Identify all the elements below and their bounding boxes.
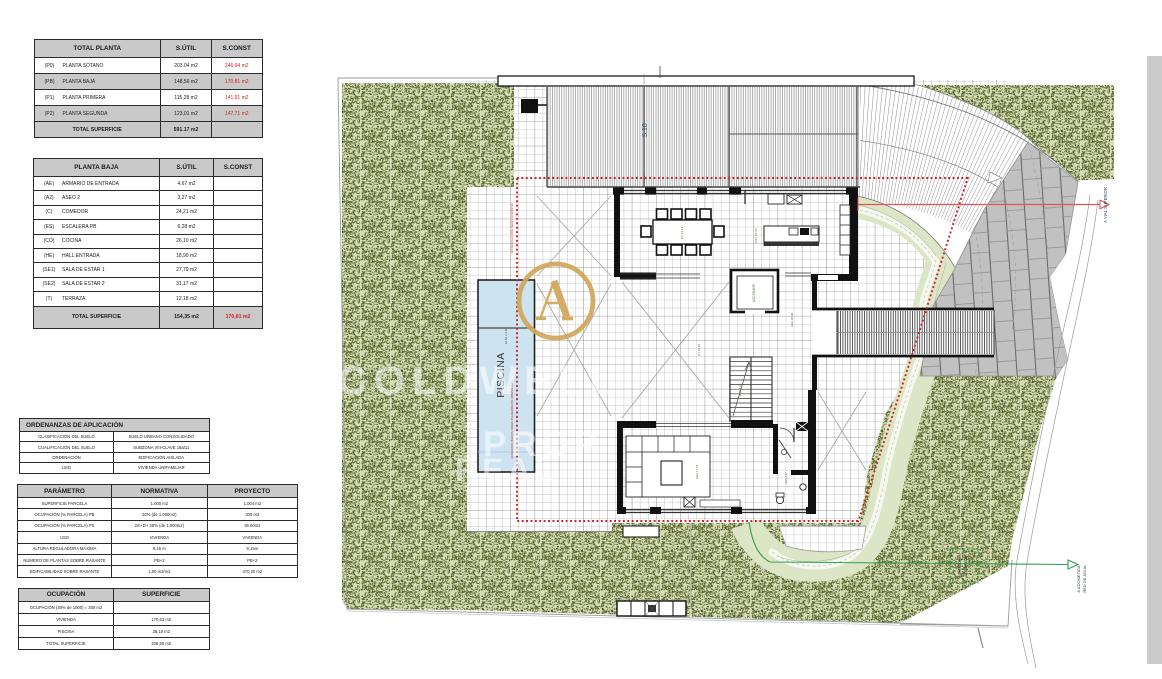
svg-text:(A2) 3.27: (A2) 3.27 bbox=[784, 472, 788, 484]
svg-text:A ACOMETIDA: A ACOMETIDA bbox=[1076, 565, 1081, 592]
svg-text:REAL: REAL bbox=[455, 452, 558, 488]
svg-text:COLDWELL: COLDWELL bbox=[338, 359, 621, 403]
svg-text:12.50 x 4.50: 12.50 x 4.50 bbox=[504, 327, 508, 344]
svg-text:(HE) 18.90: (HE) 18.90 bbox=[790, 312, 794, 327]
svg-text:(CO) 26.10: (CO) 26.10 bbox=[754, 228, 758, 243]
svg-text:ACOMETIDA: ACOMETIDA bbox=[964, 555, 968, 576]
svg-text:CONTADORES: CONTADORES bbox=[958, 553, 962, 577]
svg-text:(ES) 6.28: (ES) 6.28 bbox=[738, 383, 742, 396]
svg-text:(T) 12.18: (T) 12.18 bbox=[697, 344, 701, 357]
svg-text:ASCENSOR: ASCENSOR bbox=[752, 283, 756, 302]
svg-text:(SE) 27.79: (SE) 27.79 bbox=[695, 464, 699, 479]
svg-text:A VIAL SUPERIOR: A VIAL SUPERIOR bbox=[1103, 187, 1108, 223]
svg-text:RED DE AGUA: RED DE AGUA bbox=[1082, 565, 1087, 593]
svg-text:DISTANCIA A LINDE SEGUN NORMAT: DISTANCIA A LINDE SEGUN NORMATIVA bbox=[510, 203, 514, 253]
svg-text:(C) 24.21: (C) 24.21 bbox=[680, 226, 684, 239]
svg-text:5.10: 5.10 bbox=[642, 123, 649, 137]
